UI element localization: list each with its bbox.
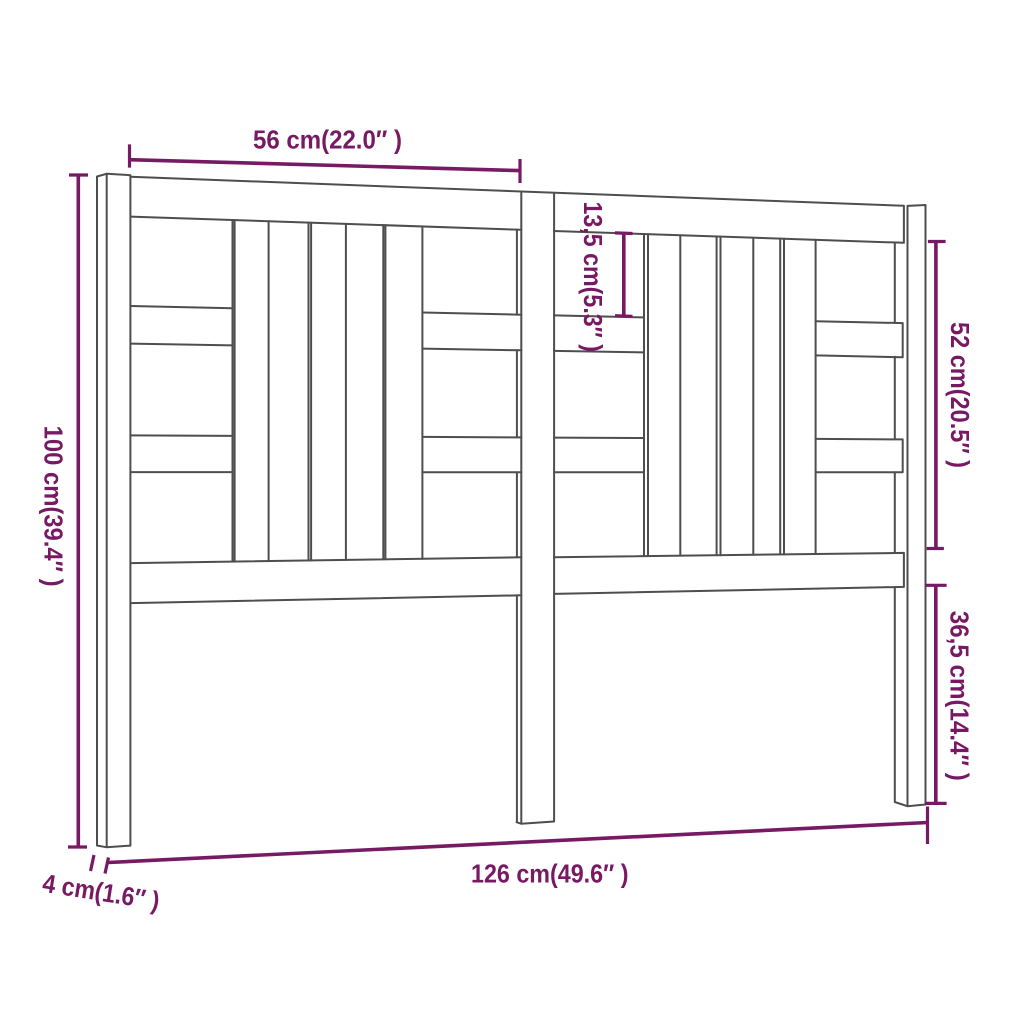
svg-text:13,5 cm(5.3″ ): 13,5 cm(5.3″ ): [578, 202, 608, 353]
svg-text:100 cm(39.4″ ): 100 cm(39.4″ ): [39, 426, 69, 587]
svg-text:36,5 cm(14.4″ ): 36,5 cm(14.4″ ): [945, 611, 975, 781]
svg-text:52 cm(20.5″ ): 52 cm(20.5″ ): [945, 322, 975, 468]
svg-text:56 cm(22.0″ ): 56 cm(22.0″ ): [253, 124, 402, 154]
svg-text:126 cm(49.6″ ): 126 cm(49.6″ ): [471, 858, 629, 888]
